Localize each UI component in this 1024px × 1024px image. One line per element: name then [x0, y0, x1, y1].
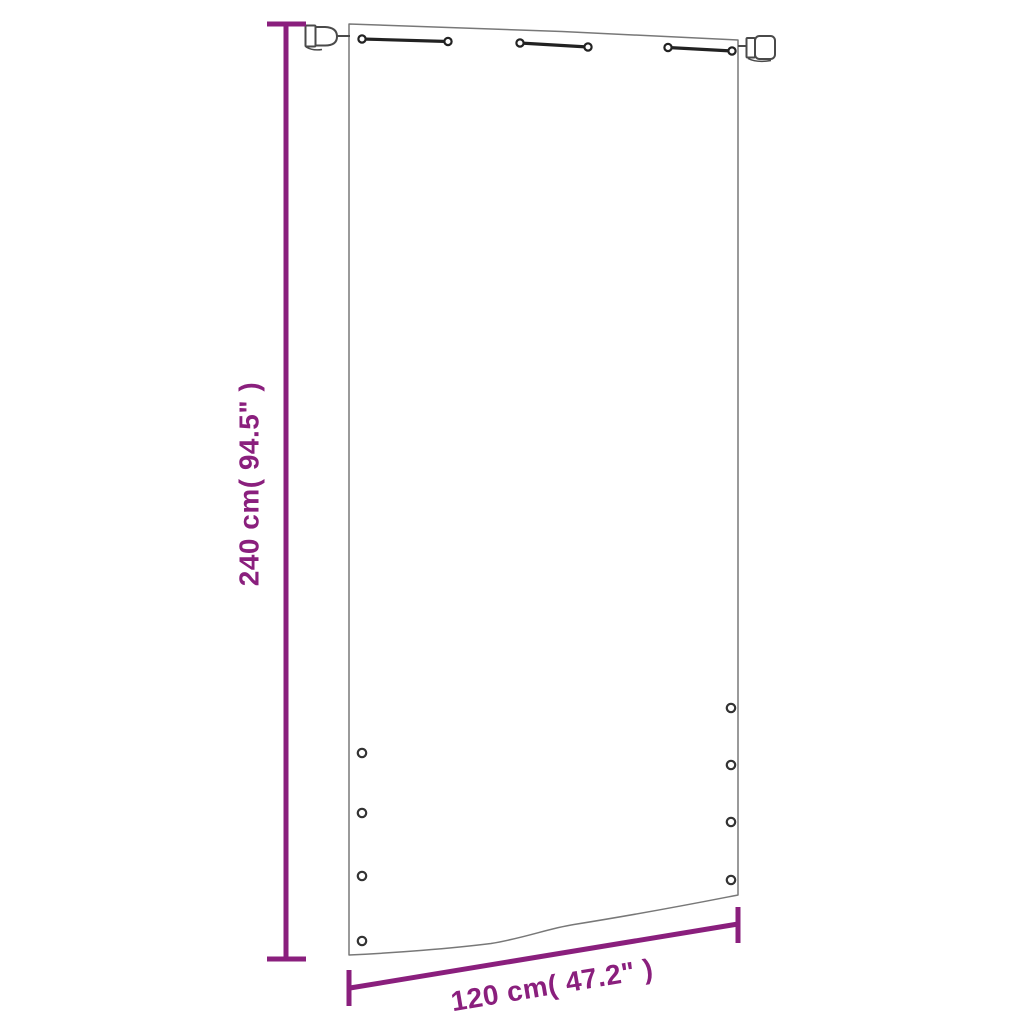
bracket-band-left — [306, 26, 316, 47]
height-dimension-label: 240 cm( 94.5" ) — [234, 382, 265, 586]
strap-eyelet — [444, 38, 451, 45]
bracket-body-right — [755, 36, 775, 59]
grommet — [358, 937, 366, 945]
bracket-body-left — [316, 27, 338, 46]
grommet — [358, 809, 366, 817]
strap-eyelet — [358, 35, 365, 42]
grommet — [727, 818, 735, 826]
strap-eyelet — [664, 44, 671, 51]
strap-eyelet — [728, 47, 735, 54]
height-dimension: 240 cm( 94.5" ) — [234, 24, 307, 959]
grommet — [358, 749, 366, 757]
product-dimension-diagram: 240 cm( 94.5" ) 120 cm( 47.2" ) — [0, 0, 1024, 1024]
grommet — [358, 872, 366, 880]
grommet — [727, 876, 735, 884]
bracket-band-right — [747, 38, 756, 58]
grommet — [727, 704, 735, 712]
curtain-panel-outline — [349, 24, 738, 955]
diagram-canvas: 240 cm( 94.5" ) 120 cm( 47.2" ) — [0, 0, 1024, 1024]
grommet — [727, 761, 735, 769]
strap-eyelet — [516, 39, 523, 46]
rod-bracket-left — [306, 26, 351, 50]
strap-eyelet — [584, 43, 591, 50]
rod-bracket-right — [738, 36, 775, 61]
width-dimension-label: 120 cm( 47.2" ) — [449, 953, 656, 1017]
